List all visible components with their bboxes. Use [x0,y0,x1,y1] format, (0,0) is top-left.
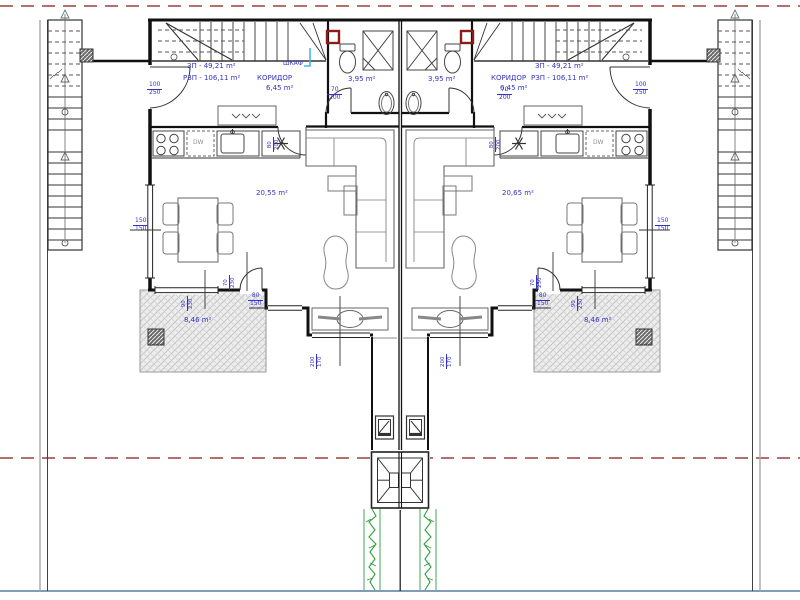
sink-right [406,92,421,115]
stair-column-left [80,49,93,62]
bathroom-right [406,31,474,115]
right-living-area: 20,65 m² [502,189,534,198]
terrace-right [534,290,660,372]
coffee-table-left [328,176,357,215]
kitchen-right [500,106,648,158]
stair-connectors [80,49,720,62]
stair-direction-marks-left [50,69,62,79]
left-corridor-name: КОРИДОР [257,74,292,83]
right-bathroom-area: 3,95 m² [428,75,455,84]
dining-table-right [567,198,637,262]
left-dishwasher-label: DW [193,139,204,147]
entry-door-dim-right: 100 250 [633,82,648,97]
coffee-table-right [443,176,472,215]
facade-window-dim-left: 150 150 [133,218,148,233]
rug-right [452,236,476,289]
left-unit-built-area-label: ЗП - 49,21 m² [187,62,236,71]
left-corridor-area: 6,45 m² [266,84,293,93]
terrace-window-dim-left: 90230 [177,297,196,312]
hall-cabinet-right [524,106,582,125]
hedge-left [364,509,380,590]
left-bathroom-area: 3,95 m² [348,75,375,84]
bath-door-dim-right: 70 200 [497,87,512,102]
dining-table-left [163,198,233,262]
stair-column-right [707,49,720,62]
kitchen-sink-right [541,129,583,156]
terrace-column-right [636,329,652,345]
left-terrace-area: 8,46 m² [184,316,211,325]
tv-cabinet-left [312,308,388,330]
right-unit-built-area-label: ЗП - 49,21 m² [535,62,584,71]
sofa-left [306,130,394,268]
entry-door-dim-left: 100 250 [147,82,162,97]
stair-direction-marks-right [738,69,750,79]
living-window-dim-left: 200170 [306,355,325,370]
right-terrace-area: 8,46 m² [584,316,611,325]
right-dishwasher-label: DW [593,139,604,147]
floor-plan-canvas: ЗП - 49,21 m² РЗП - 106,11 m² ЗП - 49,21… [0,0,800,600]
facade-window-dim-right: 150 150 [655,218,670,233]
terrace-door-dim-right: 70230 [526,276,545,291]
closet-label: ШКАФ [283,60,303,68]
exterior-stair-left [48,10,82,250]
skylight-shaft [370,450,430,510]
left-living-area: 20,55 m² [256,189,288,198]
terrace-door-dim-left: 70230 [219,276,238,291]
kitchen-sink-left [217,129,259,156]
closet-marker [304,48,310,66]
corridor-vent-left [376,416,394,439]
shower-right [407,31,437,70]
shower-left [363,31,393,70]
left-unit-total-area-label: РЗП - 106,11 m² [183,74,240,83]
side-window-dim-left: 80 150 [248,293,263,308]
floor-plan-drawing [0,0,800,600]
stove-right [616,131,647,156]
kitchen-door-dim-left: 80200 [263,138,282,153]
terrace-column-left [148,329,164,345]
kitchen-door-dim-right: 80200 [485,138,504,153]
bath-door-dim-left: 70 200 [327,87,342,102]
sink-left [379,92,394,115]
terrace-window-dim-right: 90230 [567,297,586,312]
corridor-vent-right [407,416,425,439]
right-corridor-name: КОРИДОР [491,74,526,83]
exterior-stair-right [718,10,752,250]
rug-left [324,236,348,289]
interior-stair-right [474,22,648,61]
interior-stair-left [152,22,326,61]
bathroom-left [326,31,394,115]
living-window-dim-right: 200170 [436,355,455,370]
right-unit-total-area-label: РЗП - 106,11 m² [531,74,588,83]
stove-left [153,131,184,156]
side-window-dim-right: 80 150 [535,293,550,308]
hedge-right [420,509,436,590]
sofa-right [406,130,494,268]
bath-door-right [449,88,474,113]
hall-cabinet-left [218,106,276,125]
tv-cabinet-right [412,308,488,330]
